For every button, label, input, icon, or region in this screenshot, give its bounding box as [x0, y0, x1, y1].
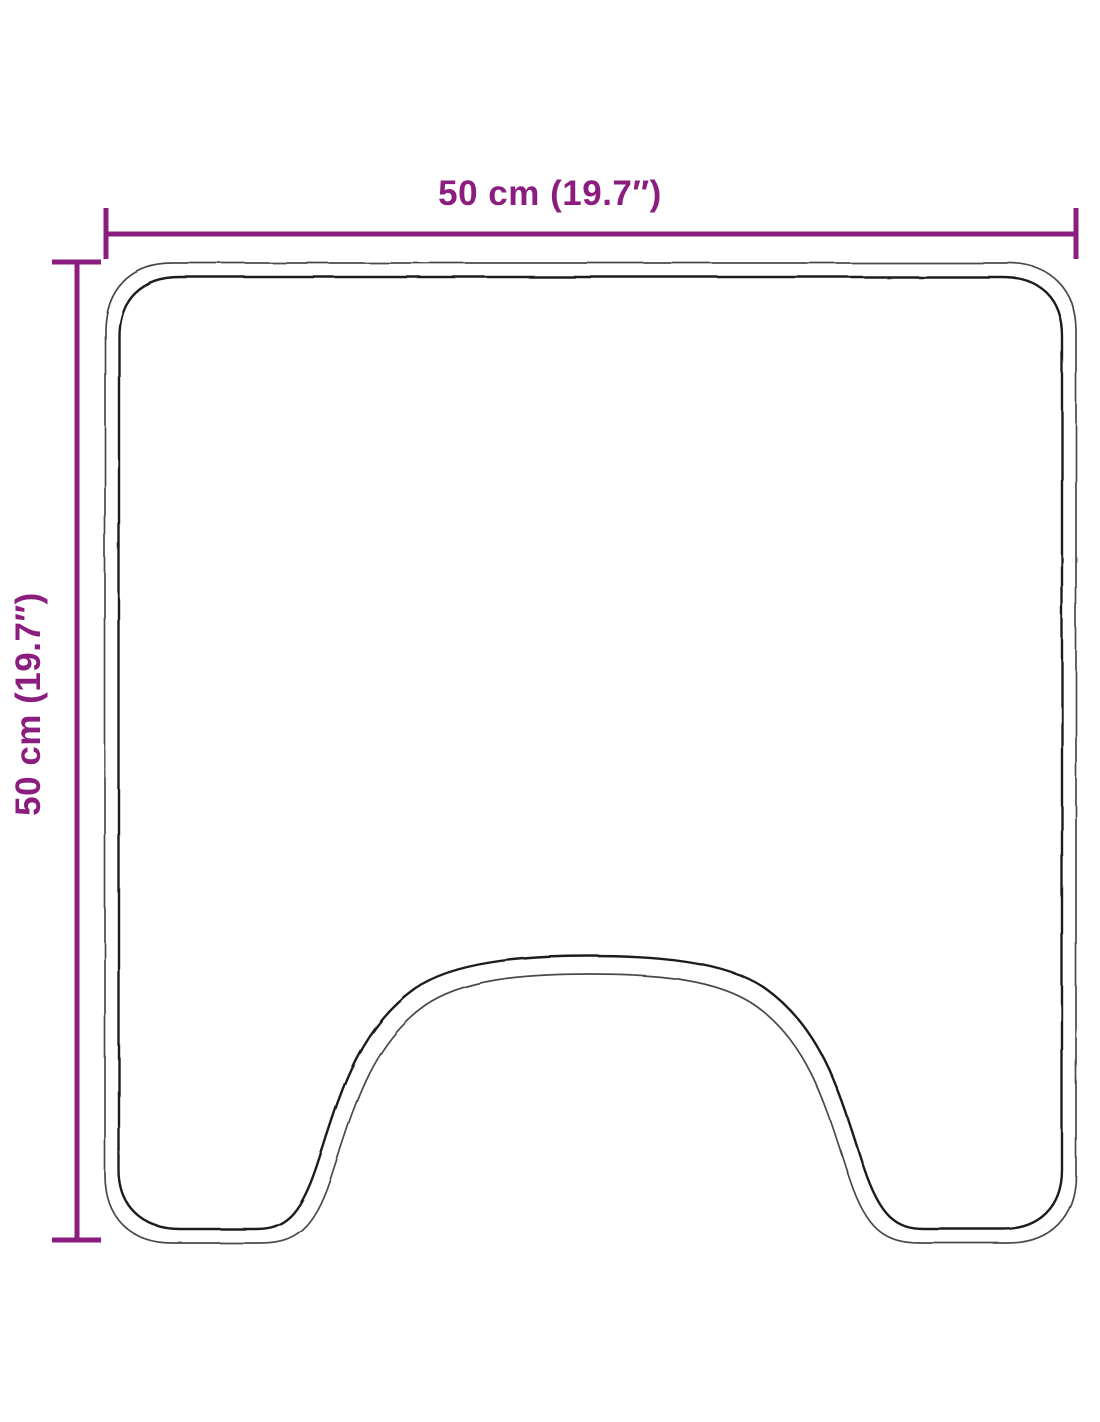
mat-outline-outer: [105, 263, 1076, 1243]
width-dimension: 50 cm (19.7″): [106, 174, 1076, 259]
bath-mat-outline: [105, 263, 1076, 1243]
mat-outline-inner: [119, 277, 1062, 1229]
height-label: 50 cm (19.7″): [9, 592, 48, 816]
dimension-diagram: 50 cm (19.7″) 50 cm (19.7″): [0, 0, 1100, 1422]
height-dimension: 50 cm (19.7″): [9, 262, 101, 1240]
width-label: 50 cm (19.7″): [438, 174, 662, 213]
diagram-canvas: 50 cm (19.7″) 50 cm (19.7″): [0, 0, 1100, 1422]
